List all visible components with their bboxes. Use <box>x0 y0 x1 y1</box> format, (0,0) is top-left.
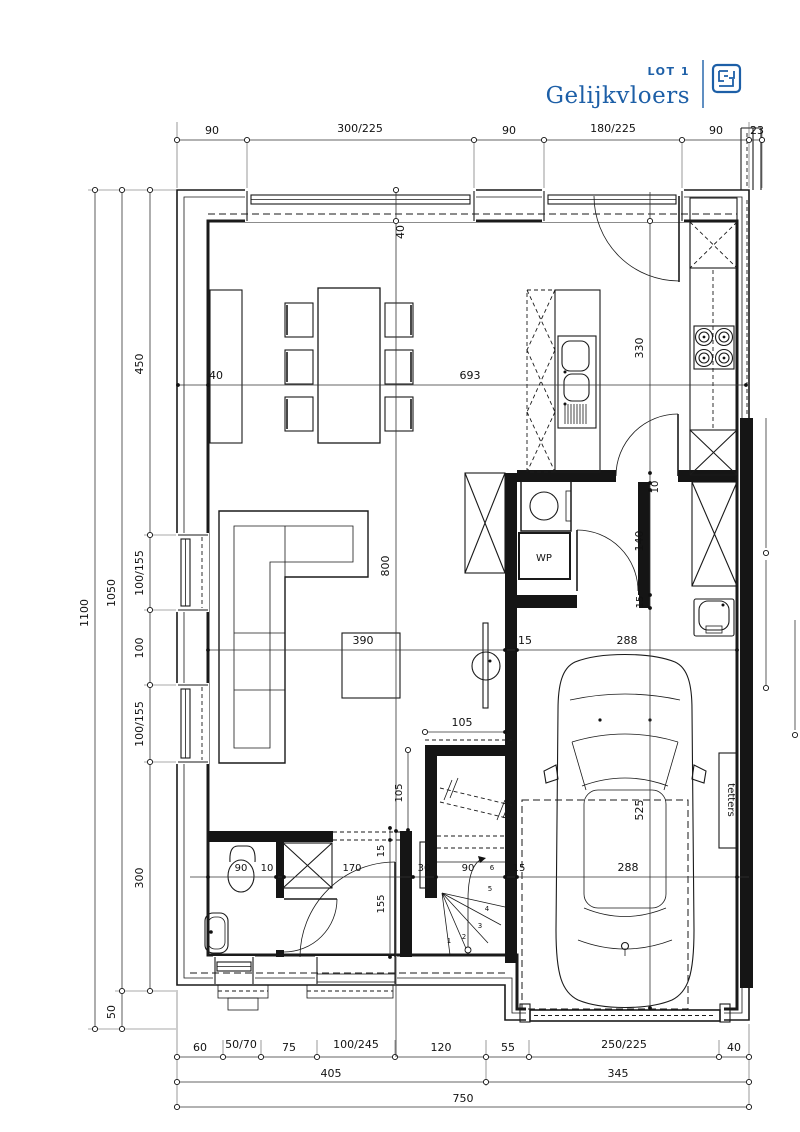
window-wc <box>213 956 255 984</box>
svg-text:50/70: 50/70 <box>225 1038 257 1051</box>
svg-text:15: 15 <box>513 863 526 874</box>
svg-text:50: 50 <box>105 1005 118 1019</box>
svg-text:90: 90 <box>235 863 248 874</box>
svg-text:100: 100 <box>133 638 146 659</box>
floorplan-drawing: WP 1 2 3 4 5 6 7 tetters <box>0 0 800 1132</box>
svg-text:750: 750 <box>453 1092 474 1105</box>
svg-text:30: 30 <box>418 863 431 874</box>
svg-text:90: 90 <box>205 124 219 137</box>
svg-text:345: 345 <box>608 1067 629 1080</box>
tread-number: 2 <box>462 933 466 941</box>
svg-text:60: 60 <box>193 1041 207 1054</box>
tread-number: 5 <box>488 885 492 893</box>
tread-number: 1 <box>447 937 451 945</box>
sideboard <box>210 290 242 443</box>
garage-side-label: tetters <box>725 783 736 816</box>
svg-text:105: 105 <box>394 783 405 802</box>
svg-text:100/245: 100/245 <box>333 1038 379 1051</box>
svg-text:120: 120 <box>431 1041 452 1054</box>
svg-text:300/225: 300/225 <box>337 122 383 135</box>
front-door-opening <box>315 956 397 984</box>
berging-door <box>577 530 638 591</box>
svg-text:90: 90 <box>462 863 475 874</box>
dining-table <box>318 288 380 443</box>
svg-text:1050: 1050 <box>105 579 118 607</box>
car <box>544 655 706 1008</box>
entrance-steps <box>218 985 393 1010</box>
utility-sink-icon <box>694 599 734 636</box>
svg-text:180/225: 180/225 <box>590 122 636 135</box>
neighbour-lines <box>763 418 797 738</box>
party-wall-stub <box>741 128 761 190</box>
heat-pump: WP <box>519 533 570 579</box>
svg-text:23: 23 <box>750 124 764 137</box>
washing-machine-icon <box>521 481 571 531</box>
tall-cabinet-garage <box>692 482 737 586</box>
svg-text:105: 105 <box>452 716 473 729</box>
wc-door <box>284 899 337 952</box>
berging-cabinet <box>465 473 505 573</box>
svg-text:250/225: 250/225 <box>601 1038 647 1051</box>
kitchen-counter-right <box>690 198 737 475</box>
tread-number: 6 <box>490 864 495 872</box>
svg-text:330: 330 <box>633 338 646 359</box>
window-left-upper <box>176 533 209 612</box>
sink-icon <box>558 336 596 428</box>
dimension-lines: 90 300/225 90 180/225 90 23 1100 1050 50… <box>78 122 765 1110</box>
party-wall <box>740 418 753 988</box>
hall-closet <box>283 843 332 888</box>
svg-text:390: 390 <box>353 634 374 647</box>
svg-text:100/155: 100/155 <box>133 701 146 747</box>
wp-label: WP <box>536 553 552 564</box>
svg-text:90: 90 <box>709 124 723 137</box>
tread-number: 3 <box>478 922 482 930</box>
window-top-left <box>245 189 476 222</box>
svg-text:40: 40 <box>727 1041 741 1054</box>
lot-label: LOT 1 <box>648 65 690 78</box>
interior-walls <box>208 470 737 963</box>
garage-side-unit: tetters <box>719 753 737 848</box>
svg-text:170: 170 <box>342 863 361 874</box>
svg-text:100/155: 100/155 <box>133 550 146 596</box>
svg-text:800: 800 <box>379 556 392 577</box>
floorplan-icon <box>713 65 740 92</box>
dining-chairs <box>285 303 413 431</box>
svg-text:15: 15 <box>635 596 646 609</box>
svg-text:300: 300 <box>133 868 146 889</box>
staircase: 1 2 3 4 5 6 7 <box>437 778 515 955</box>
svg-text:155: 155 <box>376 894 387 913</box>
window-left-lower <box>176 683 209 764</box>
svg-text:10: 10 <box>650 481 661 494</box>
svg-text:450: 450 <box>133 354 146 375</box>
floor-title: Gelijkvloers <box>546 83 690 109</box>
tread-number: 4 <box>485 905 490 913</box>
floorplan-sheet: WP 1 2 3 4 5 6 7 tetters <box>0 0 800 1132</box>
svg-text:75: 75 <box>282 1041 296 1054</box>
svg-text:525: 525 <box>633 800 646 821</box>
svg-text:1100: 1100 <box>78 599 91 627</box>
svg-text:55: 55 <box>501 1041 515 1054</box>
svg-text:140: 140 <box>633 531 646 552</box>
svg-text:288: 288 <box>618 861 639 874</box>
hall-lamp <box>472 623 500 708</box>
svg-text:15: 15 <box>518 634 532 647</box>
svg-text:693: 693 <box>460 369 481 382</box>
svg-text:40: 40 <box>394 225 407 239</box>
svg-text:40: 40 <box>209 369 223 382</box>
svg-text:10: 10 <box>261 863 274 874</box>
svg-text:288: 288 <box>617 634 638 647</box>
svg-text:90: 90 <box>502 124 516 137</box>
sofa <box>219 511 368 763</box>
garage-door-zone <box>522 800 688 1009</box>
title-block: LOT 1 Gelijkvloers <box>546 60 740 109</box>
window-top-right <box>542 189 684 222</box>
svg-text:405: 405 <box>321 1067 342 1080</box>
cooktop-icon <box>694 326 734 369</box>
kitchen-island <box>527 290 600 472</box>
svg-text:15: 15 <box>376 845 387 858</box>
kitchen-door <box>616 414 678 476</box>
